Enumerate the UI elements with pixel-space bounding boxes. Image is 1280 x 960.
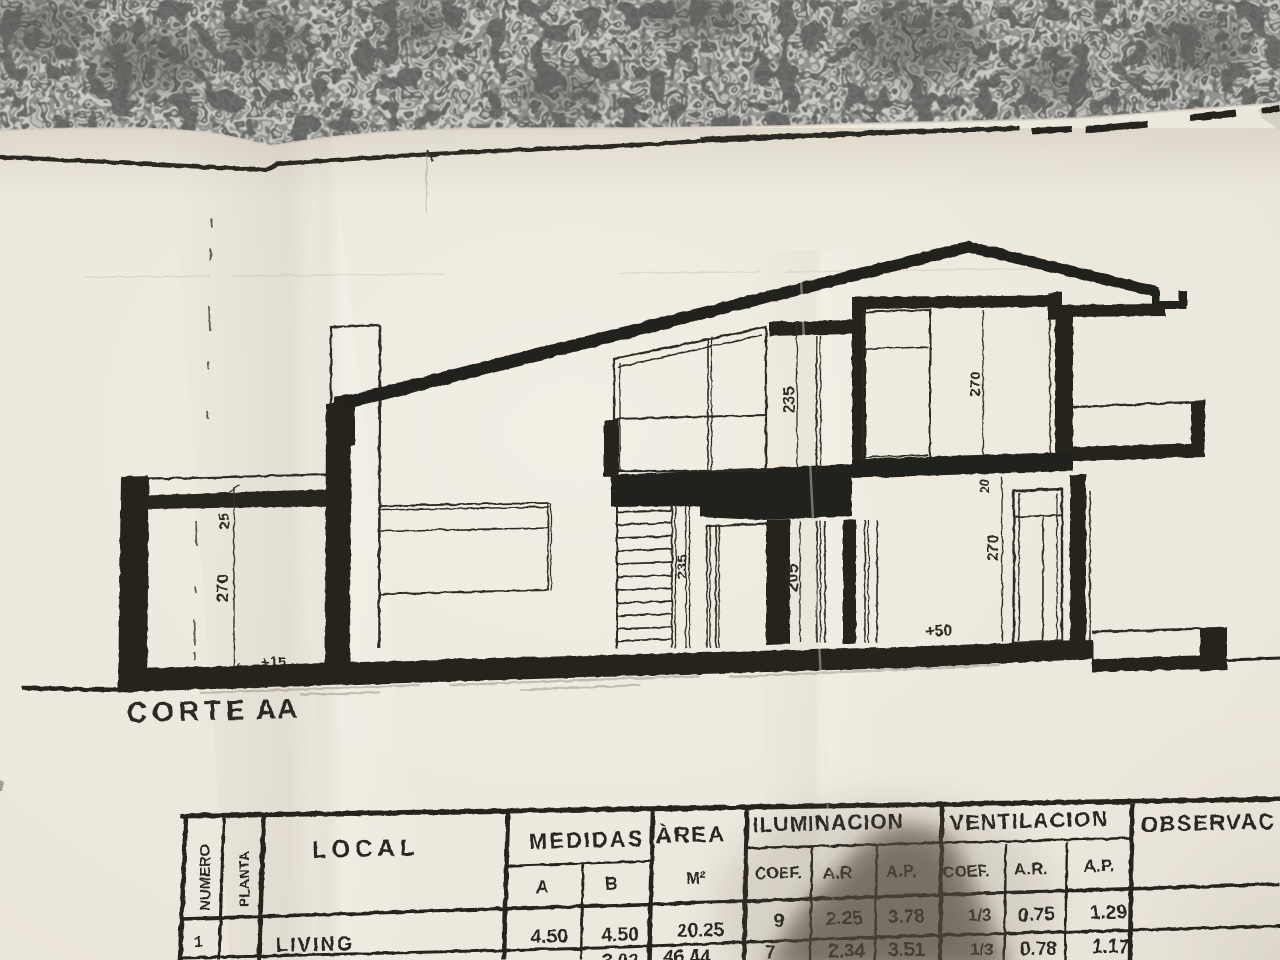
svg-text:CORTE: CORTE xyxy=(126,694,250,728)
svg-text:205: 205 xyxy=(783,564,802,592)
svg-text:MEDIDAS: MEDIDAS xyxy=(528,826,644,854)
svg-text:4.50: 4.50 xyxy=(531,926,569,948)
svg-text:270: 270 xyxy=(985,535,1002,562)
svg-text:AA: AA xyxy=(255,693,298,725)
svg-text:270: 270 xyxy=(213,574,232,602)
svg-text:LOCAL: LOCAL xyxy=(311,834,419,864)
svg-text:1.17: 1.17 xyxy=(1092,937,1129,958)
svg-text:B: B xyxy=(605,874,619,894)
svg-text:M²: M² xyxy=(686,868,707,888)
svg-text:1: 1 xyxy=(194,934,203,951)
svg-text:3.02: 3.02 xyxy=(602,951,639,960)
svg-text:25: 25 xyxy=(216,513,233,530)
svg-text:270: 270 xyxy=(967,371,984,396)
svg-text:1.29: 1.29 xyxy=(1090,902,1128,924)
svg-text:A: A xyxy=(536,877,550,897)
svg-text:OBSERVAC: OBSERVAC xyxy=(1140,808,1275,837)
svg-text:LIVING: LIVING xyxy=(276,933,355,957)
svg-text:235: 235 xyxy=(674,554,691,579)
svg-text:PLANTA: PLANTA xyxy=(236,851,252,907)
svg-text:235: 235 xyxy=(781,387,798,414)
svg-text:ÀREA: ÀREA xyxy=(655,821,726,848)
svg-text:A.P.: A.P. xyxy=(1084,856,1115,876)
svg-text:46.44: 46.44 xyxy=(663,947,711,960)
svg-text:4.50: 4.50 xyxy=(602,924,640,946)
svg-text:+50: +50 xyxy=(925,623,952,640)
svg-text:NUMERO: NUMERO xyxy=(197,844,214,911)
svg-text:20: 20 xyxy=(977,479,992,493)
